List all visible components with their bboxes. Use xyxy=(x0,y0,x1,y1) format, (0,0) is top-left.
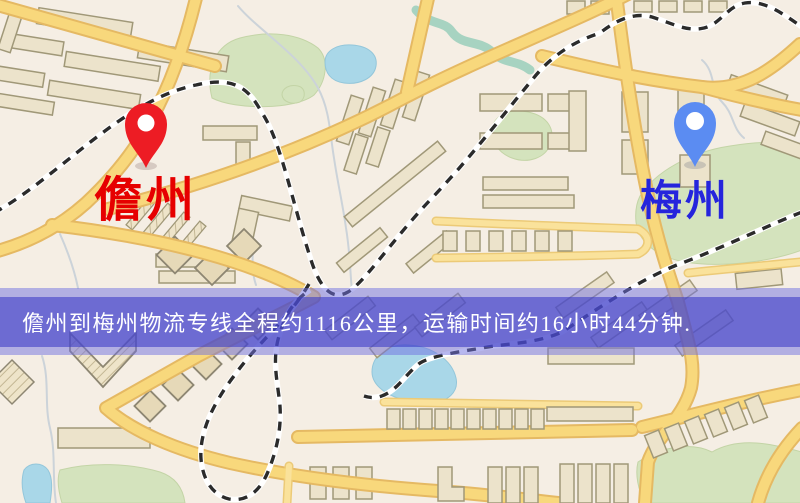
map-viewport[interactable]: 儋州 梅州 儋州到梅州物流专线全程约1116公里，运输时间约16小时44分钟. xyxy=(0,0,800,503)
route-banner: 儋州到梅州物流专线全程约1116公里，运输时间约16小时44分钟. xyxy=(0,297,800,347)
map-canvas[interactable] xyxy=(0,0,800,503)
origin-city-label: 儋州 xyxy=(94,177,198,225)
destination-pin-icon[interactable] xyxy=(670,99,720,169)
origin-pin-icon[interactable] xyxy=(121,100,171,170)
route-banner-text: 儋州到梅州物流专线全程约1116公里，运输时间约16小时44分钟. xyxy=(0,306,691,338)
destination-city-label: 梅州 xyxy=(640,181,730,223)
